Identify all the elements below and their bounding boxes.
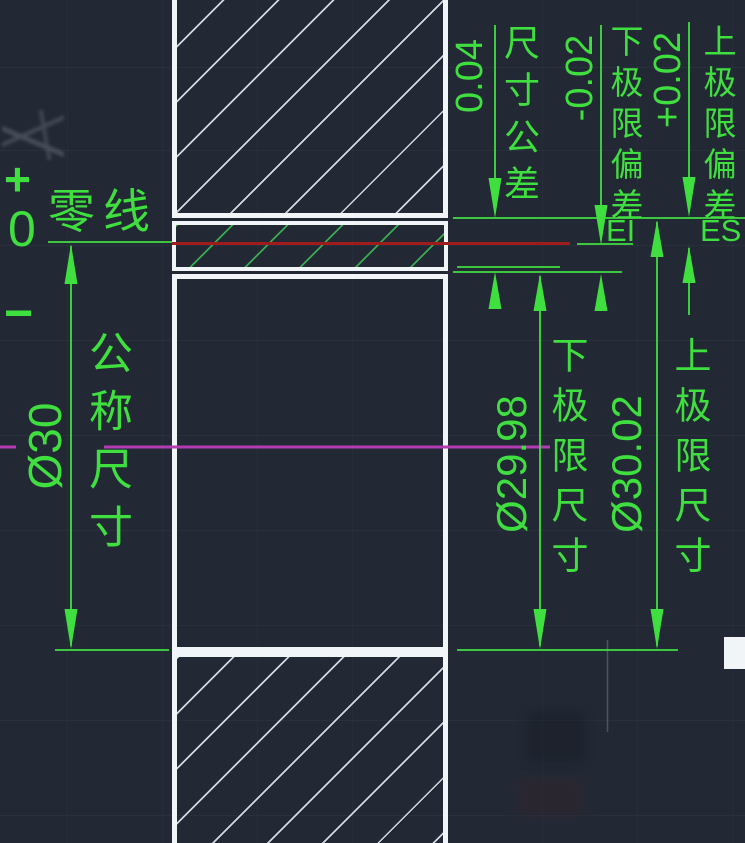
nominal-name-label: 公称尺寸 bbox=[84, 330, 128, 562]
tolerance-name-label: 尺寸公差 bbox=[501, 24, 537, 212]
lower-deviation-value-label: -0.02 bbox=[561, 35, 599, 122]
upper-limit-value-label: Ø30.02 bbox=[606, 395, 648, 533]
nominal-value-label: Ø30 bbox=[22, 403, 68, 490]
tolerance-value-label: 0.04 bbox=[451, 39, 489, 113]
lower-limit-dimension bbox=[534, 274, 547, 649]
upper-deviation-value-label: +0.02 bbox=[649, 32, 687, 128]
lower-limit-value-label: Ø29.98 bbox=[491, 395, 533, 533]
es-symbol-label: ES bbox=[700, 215, 741, 246]
upper-limit-dimension bbox=[651, 220, 664, 649]
upper-limit-name-label: 上极限尺寸 bbox=[671, 336, 708, 586]
upper-deviation-name-label: 上极限偏差 bbox=[701, 24, 734, 229]
zero-line-label: 零线 bbox=[48, 188, 158, 235]
zero-sign: 0 bbox=[8, 204, 36, 254]
white-block bbox=[724, 637, 745, 669]
lower-limit-name-label: 下极限尺寸 bbox=[548, 336, 585, 586]
lower-deviation-name-label: 下极限偏差 bbox=[608, 24, 641, 229]
cad-drawing: + 0 − 零线 Ø30 公称尺寸 0.04 尺寸公差 -0.02 下极限偏差 … bbox=[0, 0, 745, 843]
plus-sign: + bbox=[4, 156, 31, 202]
minus-sign: − bbox=[4, 288, 33, 338]
ei-symbol-label: EI bbox=[606, 215, 635, 246]
